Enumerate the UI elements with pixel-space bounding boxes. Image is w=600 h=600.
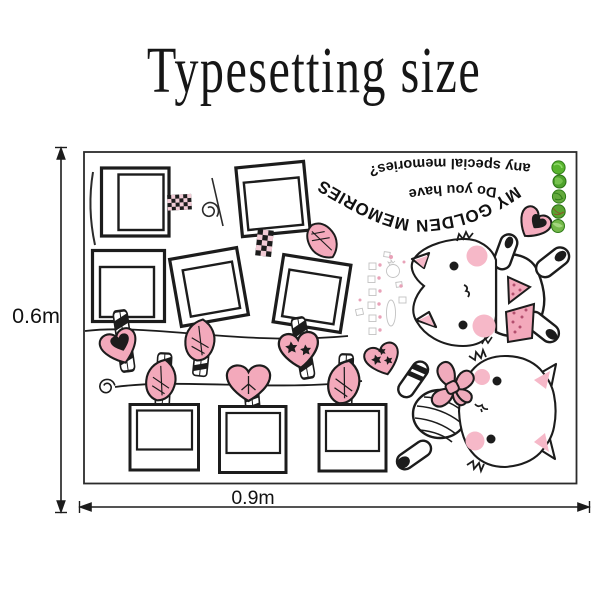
svg-text:0.6m: 0.6m [12,304,60,328]
svg-text:Typesetting size: Typesetting size [147,35,481,107]
svg-text:0.9m: 0.9m [231,487,274,509]
